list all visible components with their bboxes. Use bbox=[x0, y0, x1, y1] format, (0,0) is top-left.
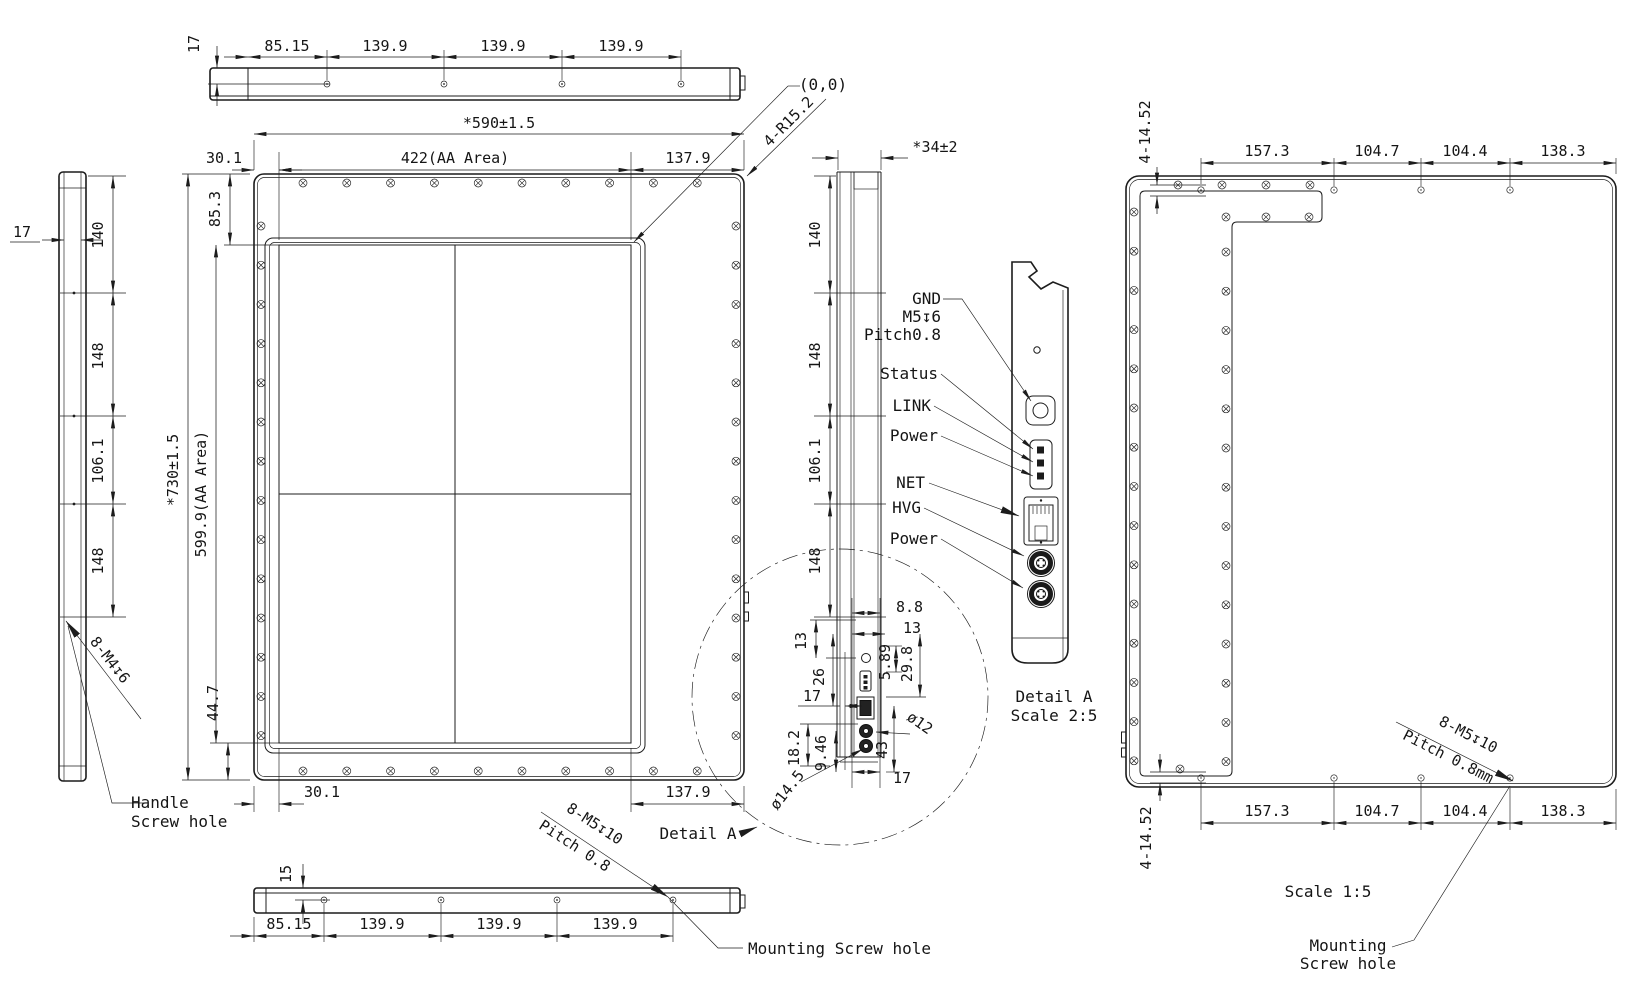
dim-bottom-hole-offset: 15 bbox=[277, 865, 295, 883]
screw-hole bbox=[732, 536, 740, 544]
screw-hole bbox=[1130, 522, 1138, 530]
dim-left-pitch-1: 140 bbox=[89, 221, 107, 248]
dim-front-width: *590±1.5 bbox=[463, 114, 535, 132]
screw-hole bbox=[649, 179, 657, 187]
screw-hole bbox=[1222, 248, 1230, 256]
screw-hole bbox=[1222, 758, 1230, 766]
dim-top-pitch-4: 139.9 bbox=[598, 37, 643, 55]
screw-hole bbox=[1306, 181, 1314, 189]
dim-rear-bottom-3: 104.4 bbox=[1442, 802, 1487, 820]
corner-radius-label: 4-R15.2 bbox=[760, 93, 817, 150]
screw-hole bbox=[1130, 247, 1138, 255]
drawing-canvas: 17 85.15 139.9 139.9 139.9 *590±1.5 bbox=[0, 0, 1632, 986]
dim-rear-top-1: 157.3 bbox=[1244, 142, 1289, 160]
dim-detail-5_89: 5.89 bbox=[876, 644, 894, 680]
screw-hole bbox=[257, 614, 265, 622]
screw-hole bbox=[1331, 187, 1337, 193]
screw-hole bbox=[299, 179, 307, 187]
detail-a-callout: Detail A bbox=[659, 824, 736, 843]
screw-hole bbox=[732, 614, 740, 622]
dim-left-pitch-2: 148 bbox=[89, 342, 107, 369]
screw-hole bbox=[1218, 181, 1226, 189]
screw-hole bbox=[1198, 187, 1204, 193]
dim-detail-dia12: ø12 bbox=[904, 708, 937, 738]
screw-hole bbox=[257, 379, 265, 387]
dim-rear-hole-top: 4-14.52 bbox=[1136, 100, 1154, 163]
rear-mounting-label-1: Mounting bbox=[1309, 936, 1386, 955]
screw-hole bbox=[441, 81, 447, 87]
screw-hole bbox=[554, 897, 560, 903]
screw-hole bbox=[606, 767, 614, 775]
screw-hole bbox=[257, 418, 265, 426]
screw-hole bbox=[518, 767, 526, 775]
power-led bbox=[1037, 473, 1044, 480]
dim-side-pitch-2: 148 bbox=[806, 342, 824, 369]
top-edge-view: 17 85.15 139.9 139.9 139.9 bbox=[185, 35, 745, 106]
screw-hole bbox=[430, 179, 438, 187]
origin-label: (0,0) bbox=[799, 75, 847, 94]
screw-hole bbox=[732, 261, 740, 269]
screw-hole bbox=[732, 418, 740, 426]
dim-rear-top-4: 138.3 bbox=[1540, 142, 1585, 160]
screw-hole bbox=[1222, 679, 1230, 687]
screw-hole bbox=[430, 767, 438, 775]
screw-hole bbox=[606, 179, 614, 187]
screw-hole bbox=[1222, 287, 1230, 295]
screw-hole bbox=[1130, 757, 1138, 765]
screw-hole bbox=[1222, 326, 1230, 334]
label-power-led: Power bbox=[890, 426, 939, 445]
dim-detail-13a: 13 bbox=[903, 619, 921, 637]
screw-hole bbox=[1507, 187, 1513, 193]
link-led bbox=[1037, 460, 1044, 467]
screw-hole bbox=[518, 179, 526, 187]
screw-hole bbox=[257, 536, 265, 544]
screw-hole bbox=[1418, 775, 1424, 781]
screw-hole bbox=[257, 732, 265, 740]
screw-hole bbox=[693, 179, 701, 187]
dim-front-bottom-offset: 44.7 bbox=[204, 685, 222, 721]
rear-cover-contour bbox=[1140, 191, 1322, 776]
detail-a-title: Detail A bbox=[1015, 687, 1092, 706]
screw-hole bbox=[732, 575, 740, 583]
screw-hole bbox=[257, 575, 265, 583]
handle-screw-label-1: Handle bbox=[131, 793, 189, 812]
screw-hole bbox=[1130, 365, 1138, 373]
dim-front-aa-width: 422(AA Area) bbox=[401, 149, 509, 167]
dim-top-thickness: 17 bbox=[185, 35, 203, 53]
screw-hole bbox=[732, 340, 740, 348]
status-led bbox=[1037, 447, 1044, 454]
screw-hole bbox=[343, 767, 351, 775]
screw-hole bbox=[1222, 718, 1230, 726]
screw-hole bbox=[1130, 561, 1138, 569]
screw-hole bbox=[474, 767, 482, 775]
screw-hole bbox=[1262, 181, 1270, 189]
dim-rear-bottom-1: 157.3 bbox=[1244, 802, 1289, 820]
hvg-connector bbox=[1028, 550, 1055, 577]
dim-top-pitch-3: 139.9 bbox=[480, 37, 525, 55]
label-gnd: GND bbox=[912, 289, 941, 308]
screw-hole bbox=[678, 81, 684, 87]
screw-hole bbox=[1222, 562, 1230, 570]
screw-hole bbox=[1262, 213, 1270, 221]
dim-front-height: *730±1.5 bbox=[164, 434, 182, 506]
screw-hole bbox=[1418, 187, 1424, 193]
screw-hole bbox=[1222, 405, 1230, 413]
screw-hole bbox=[562, 767, 570, 775]
screw-hole bbox=[1130, 326, 1138, 334]
dim-front-bottom-right: 137.9 bbox=[665, 783, 710, 801]
screw-hole bbox=[257, 457, 265, 465]
rear-panel-outline bbox=[1126, 176, 1616, 787]
dim-detail-26: 26 bbox=[810, 668, 828, 686]
screw-hole bbox=[1222, 522, 1230, 530]
screw-hole bbox=[343, 179, 351, 187]
dim-front-top-offset: 85.3 bbox=[206, 191, 224, 227]
screw-hole bbox=[1222, 366, 1230, 374]
screw-hole bbox=[387, 179, 395, 187]
dim-detail-13b: 13 bbox=[792, 632, 810, 650]
screw-hole bbox=[257, 653, 265, 661]
screw-hole bbox=[257, 340, 265, 348]
rear-mounting-label-2: Screw hole bbox=[1300, 954, 1396, 973]
screw-hole bbox=[562, 179, 570, 187]
dim-bottom-pitch-2: 139.9 bbox=[359, 915, 404, 933]
screw-hole bbox=[1222, 213, 1230, 221]
dim-side-depth: *34±2 bbox=[912, 138, 957, 156]
dim-detail-9_46: 9.46 bbox=[812, 735, 830, 771]
screw-hole bbox=[387, 767, 395, 775]
screw-hole bbox=[1130, 443, 1138, 451]
gnd-stud-side bbox=[862, 654, 871, 663]
screw-hole bbox=[1222, 601, 1230, 609]
mounting-screw-label: Mounting Screw hole bbox=[748, 939, 931, 958]
dim-front-right-offset: 137.9 bbox=[665, 149, 710, 167]
rear-scale-label: Scale 1:5 bbox=[1285, 882, 1372, 901]
dim-bottom-pitch-3: 139.9 bbox=[476, 915, 521, 933]
dim-detail-17b: 17 bbox=[893, 769, 911, 787]
label-status: Status bbox=[880, 364, 938, 383]
screw-hole bbox=[1222, 444, 1230, 452]
screw-hole bbox=[559, 81, 565, 87]
dim-rear-top-2: 104.7 bbox=[1354, 142, 1399, 160]
screw-hole bbox=[732, 300, 740, 308]
screw-hole bbox=[299, 767, 307, 775]
label-gnd-thread: M5↧6 bbox=[902, 307, 941, 326]
dim-front-aa-height: 599.9(AA Area) bbox=[192, 431, 210, 557]
dim-rear-top-3: 104.4 bbox=[1442, 142, 1487, 160]
dim-top-pitch-2: 139.9 bbox=[362, 37, 407, 55]
screw-hole bbox=[649, 767, 657, 775]
rear-view: 157.3 104.7 104.4 138.3 4-14.52 157.3 10… bbox=[1122, 100, 1617, 973]
dim-top-pitch-1: 85.15 bbox=[264, 37, 309, 55]
dim-detail-8_8: 8.8 bbox=[896, 598, 923, 616]
screw-hole bbox=[1130, 482, 1138, 490]
screw-hole bbox=[1222, 640, 1230, 648]
screw-hole bbox=[1305, 213, 1313, 221]
screw-hole bbox=[732, 222, 740, 230]
screw-hole bbox=[257, 496, 265, 504]
dim-side-pitch-1: 140 bbox=[806, 221, 824, 248]
label-hvg: HVG bbox=[892, 498, 921, 517]
front-panel-outline bbox=[254, 174, 744, 780]
dim-left-pitch-4: 148 bbox=[89, 547, 107, 574]
screw-hole bbox=[474, 179, 482, 187]
screw-hole bbox=[732, 457, 740, 465]
dim-detail-29_8: 29.8 bbox=[898, 646, 916, 682]
screw-hole bbox=[1222, 483, 1230, 491]
dim-side-pitch-4: 148 bbox=[806, 547, 824, 574]
dim-side-pitch-3: 106.1 bbox=[806, 438, 824, 483]
dim-detail-dia14_5: ø14.5 bbox=[766, 767, 808, 814]
front-view: *590±1.5 30.1 422(AA Area) 137.9 (0,0) 4… bbox=[164, 75, 847, 812]
engineering-drawing: 17 85.15 139.9 139.9 139.9 *590±1.5 bbox=[0, 0, 1632, 986]
dim-left-thickness: 17 bbox=[13, 223, 31, 241]
screw-hole bbox=[1130, 718, 1138, 726]
dim-detail-43: 43 bbox=[873, 741, 891, 759]
screw-hole bbox=[1130, 639, 1138, 647]
screw-hole bbox=[1130, 404, 1138, 412]
screw-hole bbox=[732, 496, 740, 504]
label-link: LINK bbox=[892, 396, 931, 415]
handle-screw-label-2: Screw hole bbox=[131, 812, 227, 831]
dim-front-left-offset: 30.1 bbox=[206, 149, 242, 167]
screw-hole bbox=[1130, 286, 1138, 294]
screw-hole bbox=[257, 300, 265, 308]
screw-hole bbox=[1130, 678, 1138, 686]
dim-bottom-pitch-4: 139.9 bbox=[592, 915, 637, 933]
screw-hole bbox=[257, 692, 265, 700]
label-power-in: Power bbox=[890, 529, 939, 548]
bottom-edge-view: 15 85.15 139.9 139.9 139.9 8-M5↧10 Pitch… bbox=[230, 799, 931, 958]
dim-left-pitch-3: 106.1 bbox=[89, 438, 107, 483]
label-net: NET bbox=[896, 473, 925, 492]
screw-hole bbox=[1130, 208, 1138, 216]
dim-rear-bottom-4: 138.3 bbox=[1540, 802, 1585, 820]
screw-hole bbox=[732, 732, 740, 740]
dim-front-bottom-left: 30.1 bbox=[304, 783, 340, 801]
screw-hole bbox=[732, 379, 740, 387]
dim-rear-hole-bottom: 4-14.52 bbox=[1137, 806, 1155, 869]
screw-hole bbox=[1130, 600, 1138, 608]
label-gnd-pitch: Pitch0.8 bbox=[864, 325, 941, 344]
dim-detail-18_2: 18.2 bbox=[785, 730, 803, 766]
dim-detail-17a: 17 bbox=[803, 687, 821, 705]
power-connector bbox=[1028, 581, 1055, 608]
detail-a-scale: Scale 2:5 bbox=[1011, 706, 1098, 725]
screw-hole bbox=[257, 261, 265, 269]
dim-bottom-pitch-1: 85.15 bbox=[266, 915, 311, 933]
screw-hole bbox=[732, 653, 740, 661]
screw-hole bbox=[438, 897, 444, 903]
screw-hole bbox=[732, 692, 740, 700]
screw-hole bbox=[257, 222, 265, 230]
dim-rear-bottom-2: 104.7 bbox=[1354, 802, 1399, 820]
screw-hole bbox=[693, 767, 701, 775]
screw-hole bbox=[1331, 775, 1337, 781]
